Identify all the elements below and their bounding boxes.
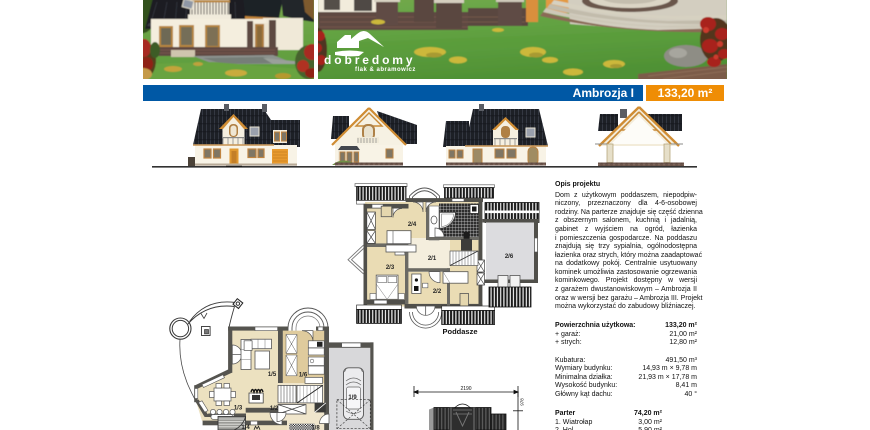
svg-text:1/8: 1/8 (311, 426, 320, 430)
svg-text:Poddasze: Poddasze (442, 327, 477, 336)
svg-text:dobredomy: dobredomy (324, 53, 415, 67)
svg-text:flak & abramowicz: flak & abramowicz (355, 67, 416, 73)
svg-text:1/9: 1/9 (348, 395, 357, 401)
svg-text:1/3: 1/3 (234, 406, 243, 412)
svg-text:1/2: 1/2 (270, 406, 279, 412)
svg-text:2/3: 2/3 (386, 265, 395, 271)
svg-text:1/6: 1/6 (299, 373, 308, 379)
svg-text:2/6: 2/6 (505, 254, 514, 260)
svg-text:2190: 2190 (460, 386, 471, 392)
svg-text:2/4: 2/4 (408, 222, 417, 228)
svg-text:1/5: 1/5 (268, 372, 277, 378)
svg-text:2/2: 2/2 (433, 289, 442, 295)
svg-text:978: 978 (520, 398, 525, 406)
svg-text:1/4: 1/4 (241, 425, 250, 430)
svg-text:2/1: 2/1 (428, 256, 437, 262)
